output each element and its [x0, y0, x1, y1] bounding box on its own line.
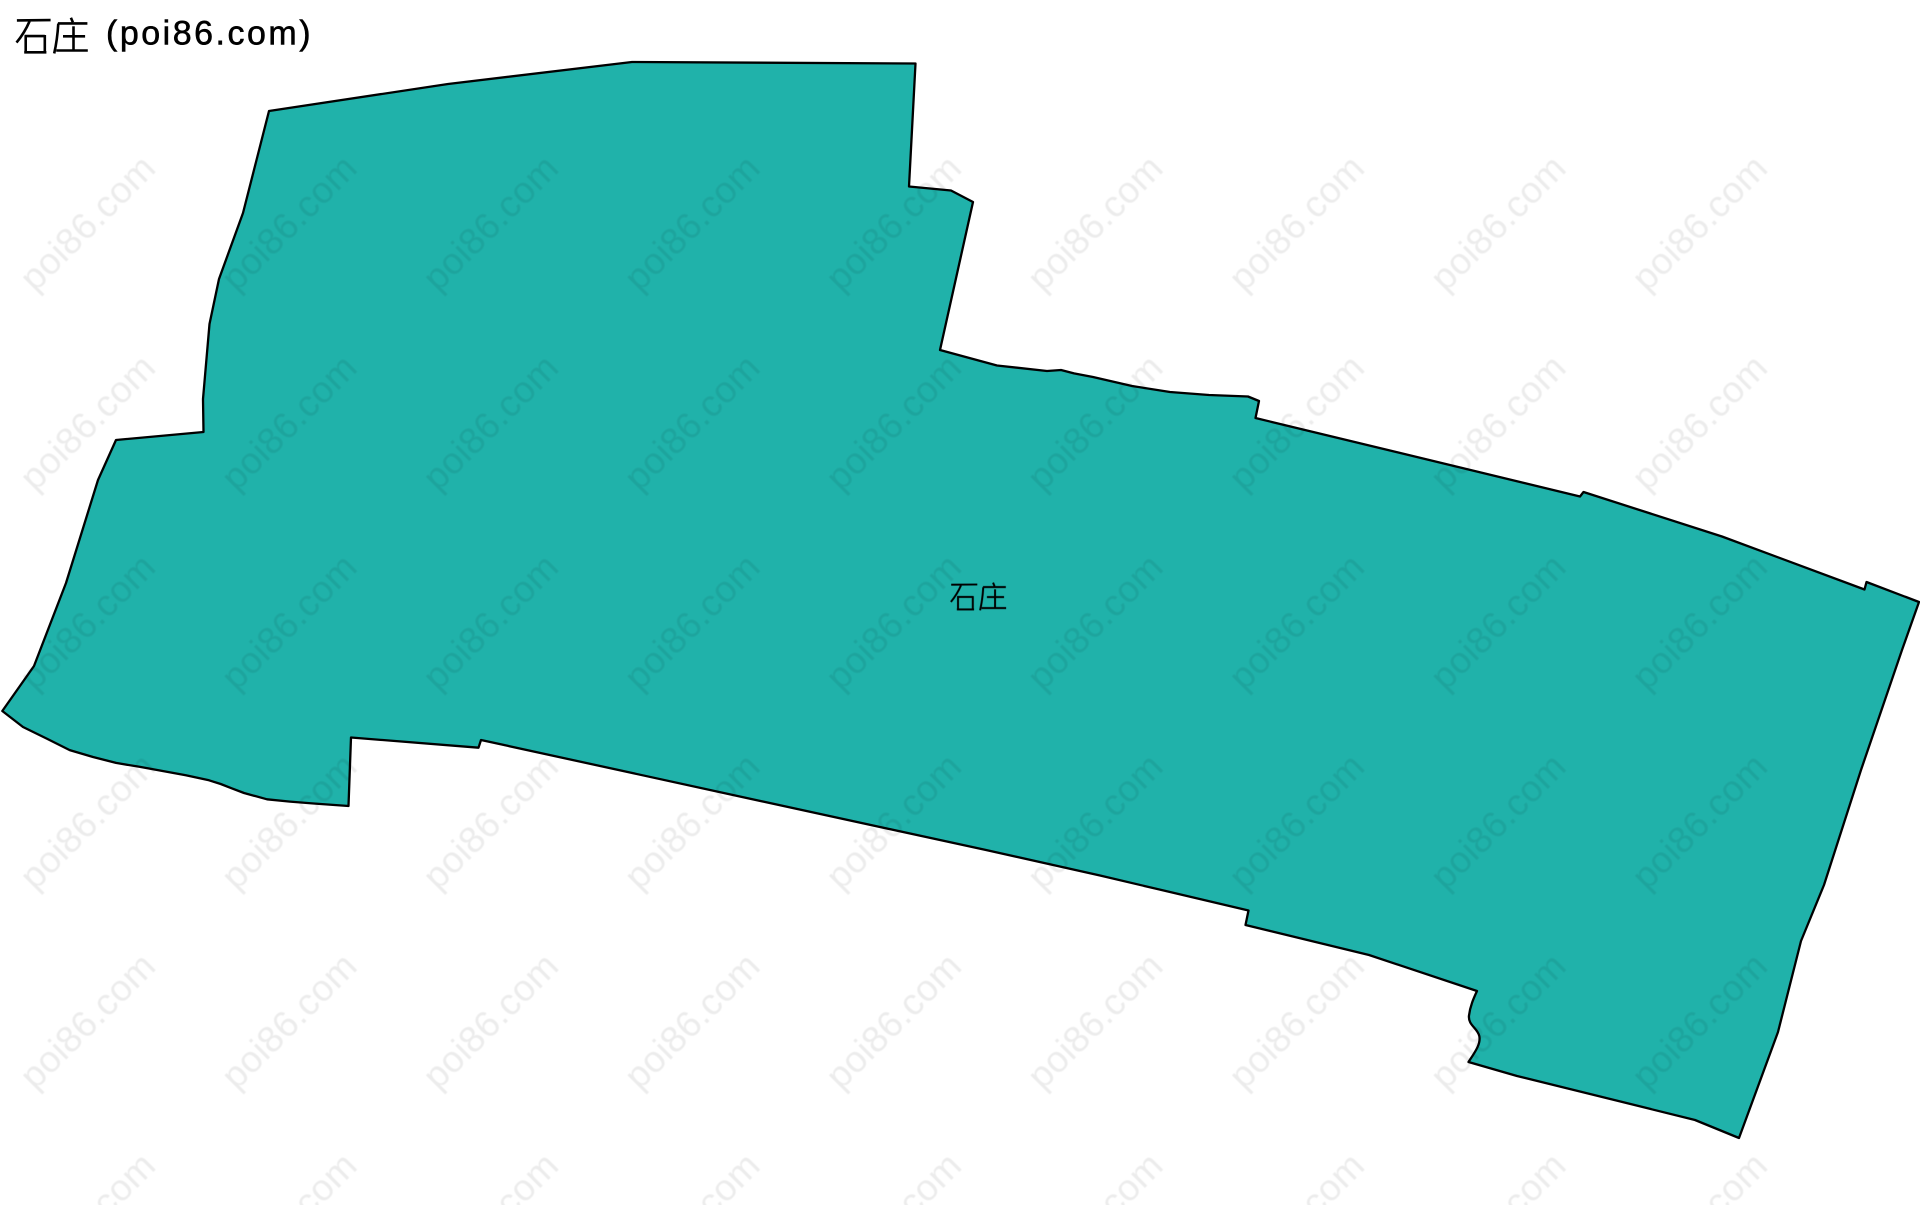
svg-text:(poi86.com): (poi86.com): [106, 14, 313, 52]
